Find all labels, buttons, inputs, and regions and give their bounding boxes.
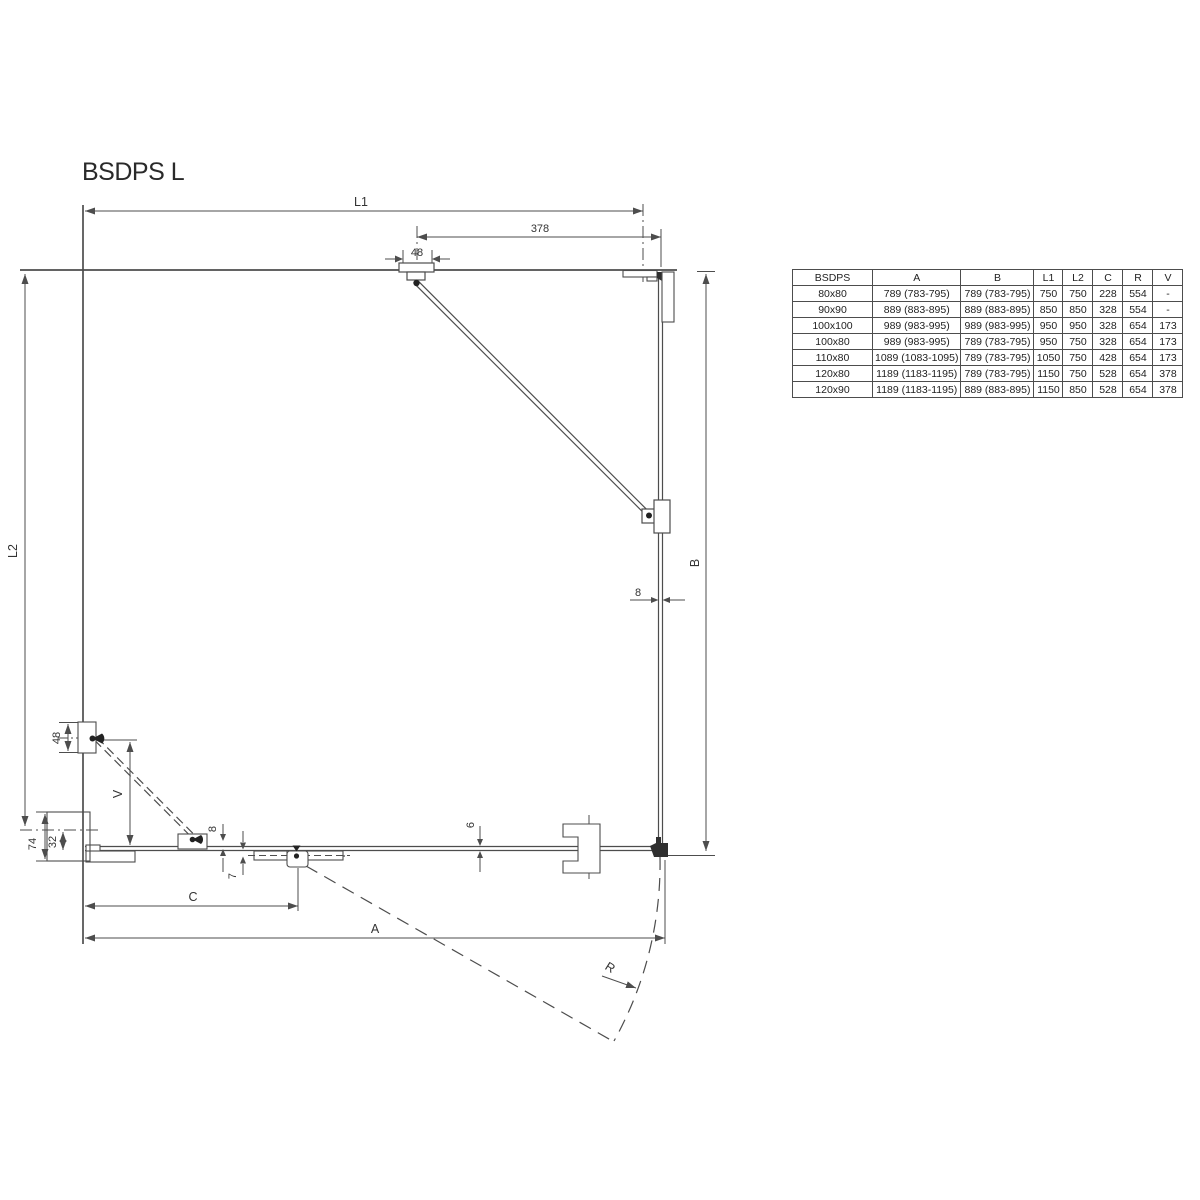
door-rail-assembly <box>86 824 600 873</box>
door-rail-glass <box>85 847 661 851</box>
table-cell: 989 (983-995) <box>873 334 961 350</box>
extension-lines <box>20 204 715 944</box>
table-row: 120x80 1189 (1183-1195) 789 (783-795) 11… <box>793 366 1183 382</box>
door-swing <box>95 738 660 1043</box>
table-cell: 378 <box>1153 366 1183 382</box>
dim-label-74: 74 <box>27 838 39 850</box>
table-cell: 950 <box>1063 318 1093 334</box>
dim-label-48-wall: 48 <box>51 732 63 744</box>
dim-label-l2: L2 <box>6 544 20 558</box>
column-header: A <box>873 270 961 286</box>
dim-label-a: A <box>371 922 380 936</box>
brace-pivot-top <box>413 280 419 286</box>
wall-bracket-flat <box>623 271 657 278</box>
table-row: 100x80 989 (983-995) 789 (783-795) 950 7… <box>793 334 1183 350</box>
table-cell: 850 <box>1063 382 1093 398</box>
table-cell: 654 <box>1123 318 1153 334</box>
dimension-l2: L2 <box>6 274 25 826</box>
table-cell: 654 <box>1123 350 1153 366</box>
top-right-fixing <box>623 271 674 323</box>
table-cell: 750 <box>1063 366 1093 382</box>
table-cell: 1150 <box>1034 366 1063 382</box>
side-panel-glass <box>659 272 663 852</box>
dimension-b: B <box>688 274 706 851</box>
table-cell: 1150 <box>1034 382 1063 398</box>
table-cell: 528 <box>1093 366 1123 382</box>
table-cell: 173 <box>1153 350 1183 366</box>
table-row: 80x80 789 (783-795) 789 (783-795) 750 75… <box>793 286 1183 302</box>
table-cell: 100x80 <box>793 334 873 350</box>
table-cell: 989 (983-995) <box>961 318 1034 334</box>
table-cell: 428 <box>1093 350 1123 366</box>
table-cell: 120x90 <box>793 382 873 398</box>
dim-label-32: 32 <box>47 836 59 848</box>
dim-label-r: R <box>603 959 618 976</box>
dim-label-7: 7 <box>227 873 239 879</box>
door-open-position <box>95 738 195 838</box>
dimension-32: 32 <box>47 832 63 850</box>
table-cell: 554 <box>1123 302 1153 318</box>
table-cell: 889 (883-895) <box>961 302 1034 318</box>
column-header: B <box>961 270 1034 286</box>
table-row: 120x90 1189 (1183-1195) 889 (883-895) 11… <box>793 382 1183 398</box>
table-cell: 989 (983-995) <box>873 318 961 334</box>
bottom-right-corner <box>650 837 668 857</box>
table-cell: 80x80 <box>793 286 873 302</box>
table-cell: 100x100 <box>793 318 873 334</box>
table-cell: 120x80 <box>793 366 873 382</box>
corner-clamp-bottom <box>650 837 668 857</box>
table-cell: - <box>1153 286 1183 302</box>
door-open-edge <box>306 866 616 1043</box>
table-cell: 750 <box>1063 350 1093 366</box>
table-cell: 173 <box>1153 334 1183 350</box>
panel-bracket-plate <box>654 500 670 533</box>
wall-profile-right <box>662 272 674 322</box>
rail-end-block <box>86 851 135 862</box>
ceiling-bracket-plate <box>399 263 434 272</box>
table-cell: 1189 (1183-1195) <box>873 366 961 382</box>
table-header-row: BSDPS A B L1 L2 C R V <box>793 270 1183 286</box>
column-header: L2 <box>1063 270 1093 286</box>
dim-label-8-panel: 8 <box>635 587 641 599</box>
door-pivot-point <box>294 853 299 858</box>
column-header: L1 <box>1034 270 1063 286</box>
shower-enclosure-plan-drawing: L1 378 48 L2 B A <box>0 0 1200 1200</box>
table-cell: 889 (883-895) <box>961 382 1034 398</box>
left-wall-fittings <box>47 722 207 861</box>
table-cell: 228 <box>1093 286 1123 302</box>
table-cell: 750 <box>1034 286 1063 302</box>
dimension-v: V <box>111 742 130 845</box>
diagonal-brace <box>415 281 650 516</box>
table-cell: 789 (783-795) <box>873 286 961 302</box>
table-cell: 750 <box>1063 334 1093 350</box>
column-header: BSDPS <box>793 270 873 286</box>
dim-label-8-door: 8 <box>207 826 219 832</box>
wall-bracket-step <box>647 277 657 281</box>
table-cell: 789 (783-795) <box>961 334 1034 350</box>
technical-drawing-page: BSDPS L L1 378 <box>0 0 1200 1200</box>
table-cell: 554 <box>1123 286 1153 302</box>
table-cell: 789 (783-795) <box>961 286 1034 302</box>
dimension-8-panel: 8 <box>630 587 685 603</box>
table-cell: 950 <box>1034 318 1063 334</box>
support-brace-assembly <box>399 263 670 533</box>
table-cell: 173 <box>1153 318 1183 334</box>
table-cell: 328 <box>1093 302 1123 318</box>
dimension-8-door: 8 <box>207 824 226 872</box>
dim-label-b: B <box>688 559 702 567</box>
table-cell: 90x90 <box>793 302 873 318</box>
table-row: 110x80 1089 (1083-1095) 789 (783-795) 10… <box>793 350 1183 366</box>
table-cell: 328 <box>1093 318 1123 334</box>
table-cell: 378 <box>1153 382 1183 398</box>
table-cell: 110x80 <box>793 350 873 366</box>
table-cell: 1089 (1083-1095) <box>873 350 961 366</box>
dimension-l1: L1 <box>85 195 643 211</box>
swing-arc <box>614 857 660 1041</box>
table-row: 90x90 889 (883-895) 889 (883-895) 850 85… <box>793 302 1183 318</box>
table-cell: 1189 (1183-1195) <box>873 382 961 398</box>
column-header: V <box>1153 270 1183 286</box>
table-row: 100x100 989 (983-995) 989 (983-995) 950 … <box>793 318 1183 334</box>
dim-label-48-top: 48 <box>411 247 423 259</box>
table-cell: 1050 <box>1034 350 1063 366</box>
table-cell: 789 (783-795) <box>961 366 1034 382</box>
column-header: C <box>1093 270 1123 286</box>
dim-label-l1: L1 <box>354 195 368 209</box>
table-cell: 889 (883-895) <box>873 302 961 318</box>
dim-label-378: 378 <box>531 223 549 235</box>
dim-label-v: V <box>111 789 125 798</box>
brace-pivot-panel <box>646 513 652 519</box>
door-pivot-block <box>287 851 308 867</box>
dimension-378: 378 <box>417 223 661 237</box>
dimension-7: 7 <box>227 831 246 879</box>
table-cell: 750 <box>1063 286 1093 302</box>
table-cell: 950 <box>1034 334 1063 350</box>
table-cell: 850 <box>1063 302 1093 318</box>
dim-label-c: C <box>188 890 197 904</box>
table-cell: 789 (783-795) <box>961 350 1034 366</box>
table-cell: 850 <box>1034 302 1063 318</box>
spec-table: BSDPS A B L1 L2 C R V 80x80 789 (783-795… <box>792 269 1183 398</box>
column-header: R <box>1123 270 1153 286</box>
dimension-r: R <box>602 959 636 988</box>
table-cell: 654 <box>1123 366 1153 382</box>
ceiling-bracket-stem <box>407 272 425 280</box>
dimension-c: C <box>85 890 298 906</box>
table-cell: 654 <box>1123 382 1153 398</box>
dimension-a: A <box>85 922 665 938</box>
table-cell: 654 <box>1123 334 1153 350</box>
table-cell: 528 <box>1093 382 1123 398</box>
dim-label-6: 6 <box>465 822 477 828</box>
table-cell: - <box>1153 302 1183 318</box>
table-cell: 328 <box>1093 334 1123 350</box>
vertical-bar-profile <box>563 824 600 873</box>
